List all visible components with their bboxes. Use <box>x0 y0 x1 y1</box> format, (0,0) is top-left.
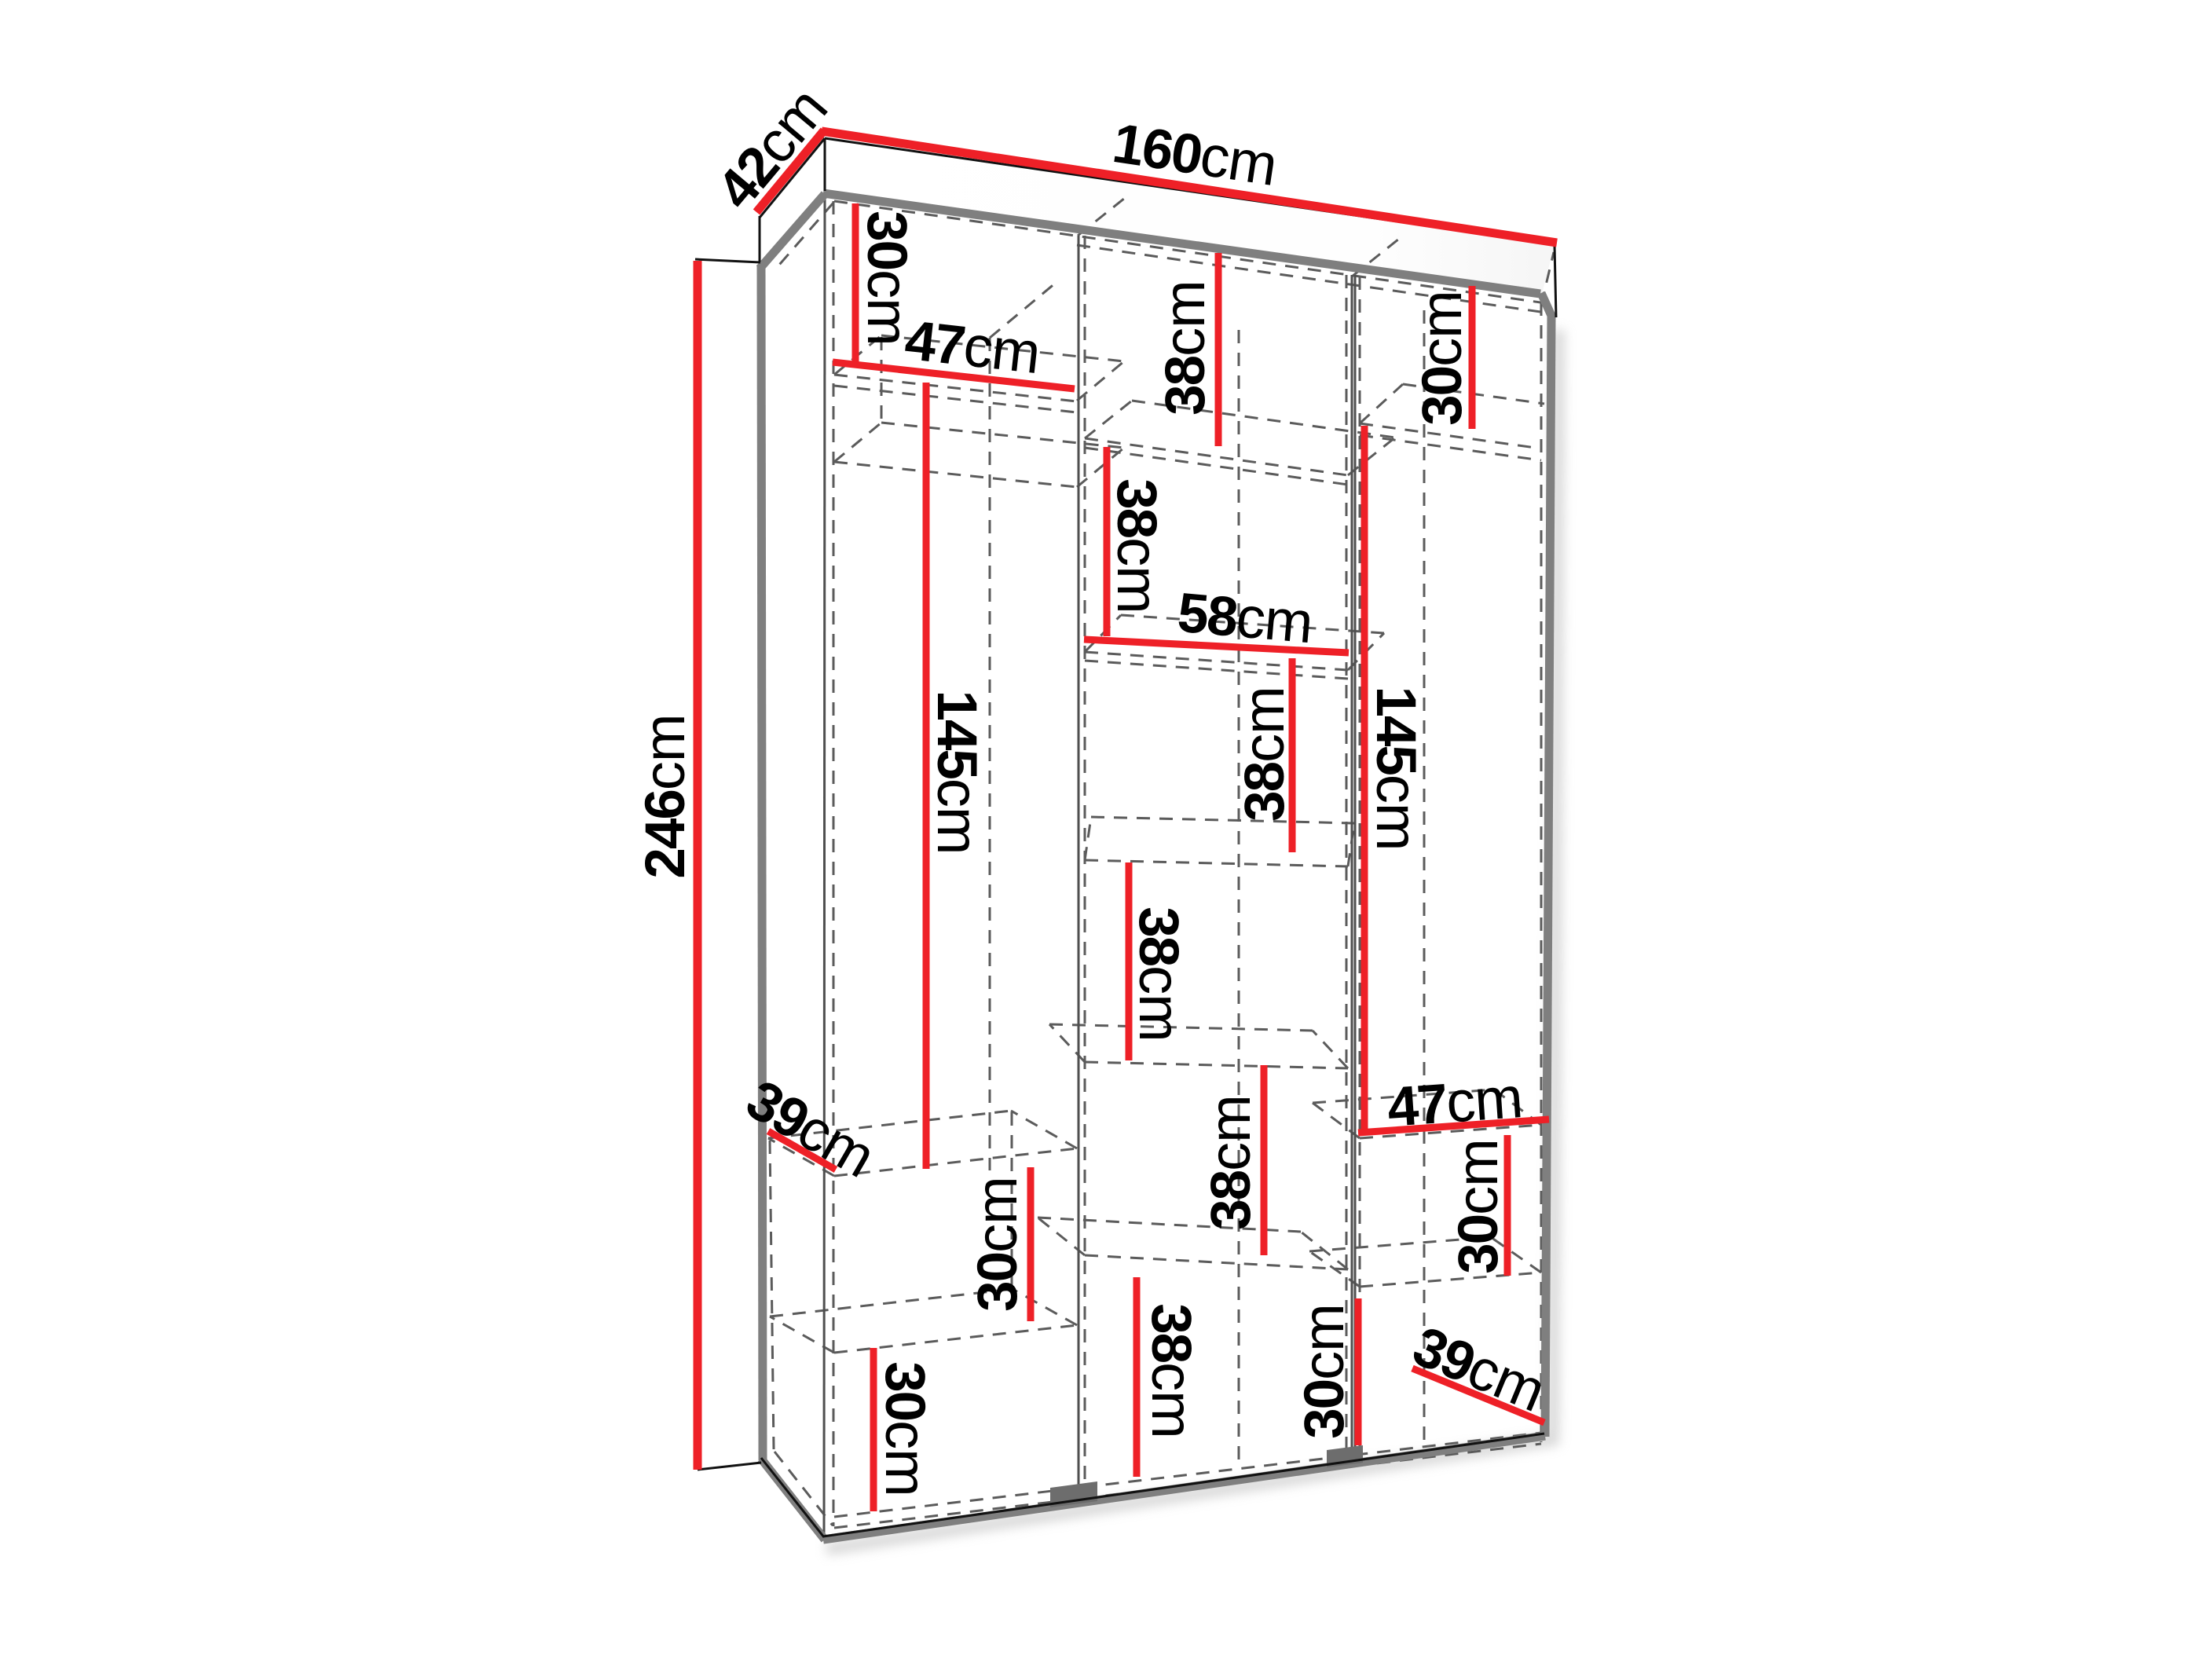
svg-text:38cm: 38cm <box>1152 280 1217 416</box>
svg-text:30cm: 30cm <box>1445 1139 1510 1274</box>
svg-text:38cm: 38cm <box>1140 1303 1205 1438</box>
svg-text:145cm: 145cm <box>1364 686 1430 850</box>
svg-text:30cm: 30cm <box>873 1361 939 1496</box>
svg-text:38cm: 38cm <box>1197 1095 1262 1230</box>
svg-text:38cm: 38cm <box>1231 687 1296 822</box>
svg-text:38cm: 38cm <box>1105 478 1170 613</box>
svg-text:145cm: 145cm <box>925 690 991 854</box>
svg-text:30cm: 30cm <box>1408 291 1474 426</box>
svg-text:30cm: 30cm <box>1291 1304 1356 1439</box>
svg-text:38cm: 38cm <box>1127 906 1192 1042</box>
svg-text:30cm: 30cm <box>964 1177 1029 1312</box>
svg-text:47cm: 47cm <box>1385 1064 1524 1139</box>
svg-text:246cm: 246cm <box>632 714 697 878</box>
svg-text:58cm: 58cm <box>1175 579 1315 656</box>
